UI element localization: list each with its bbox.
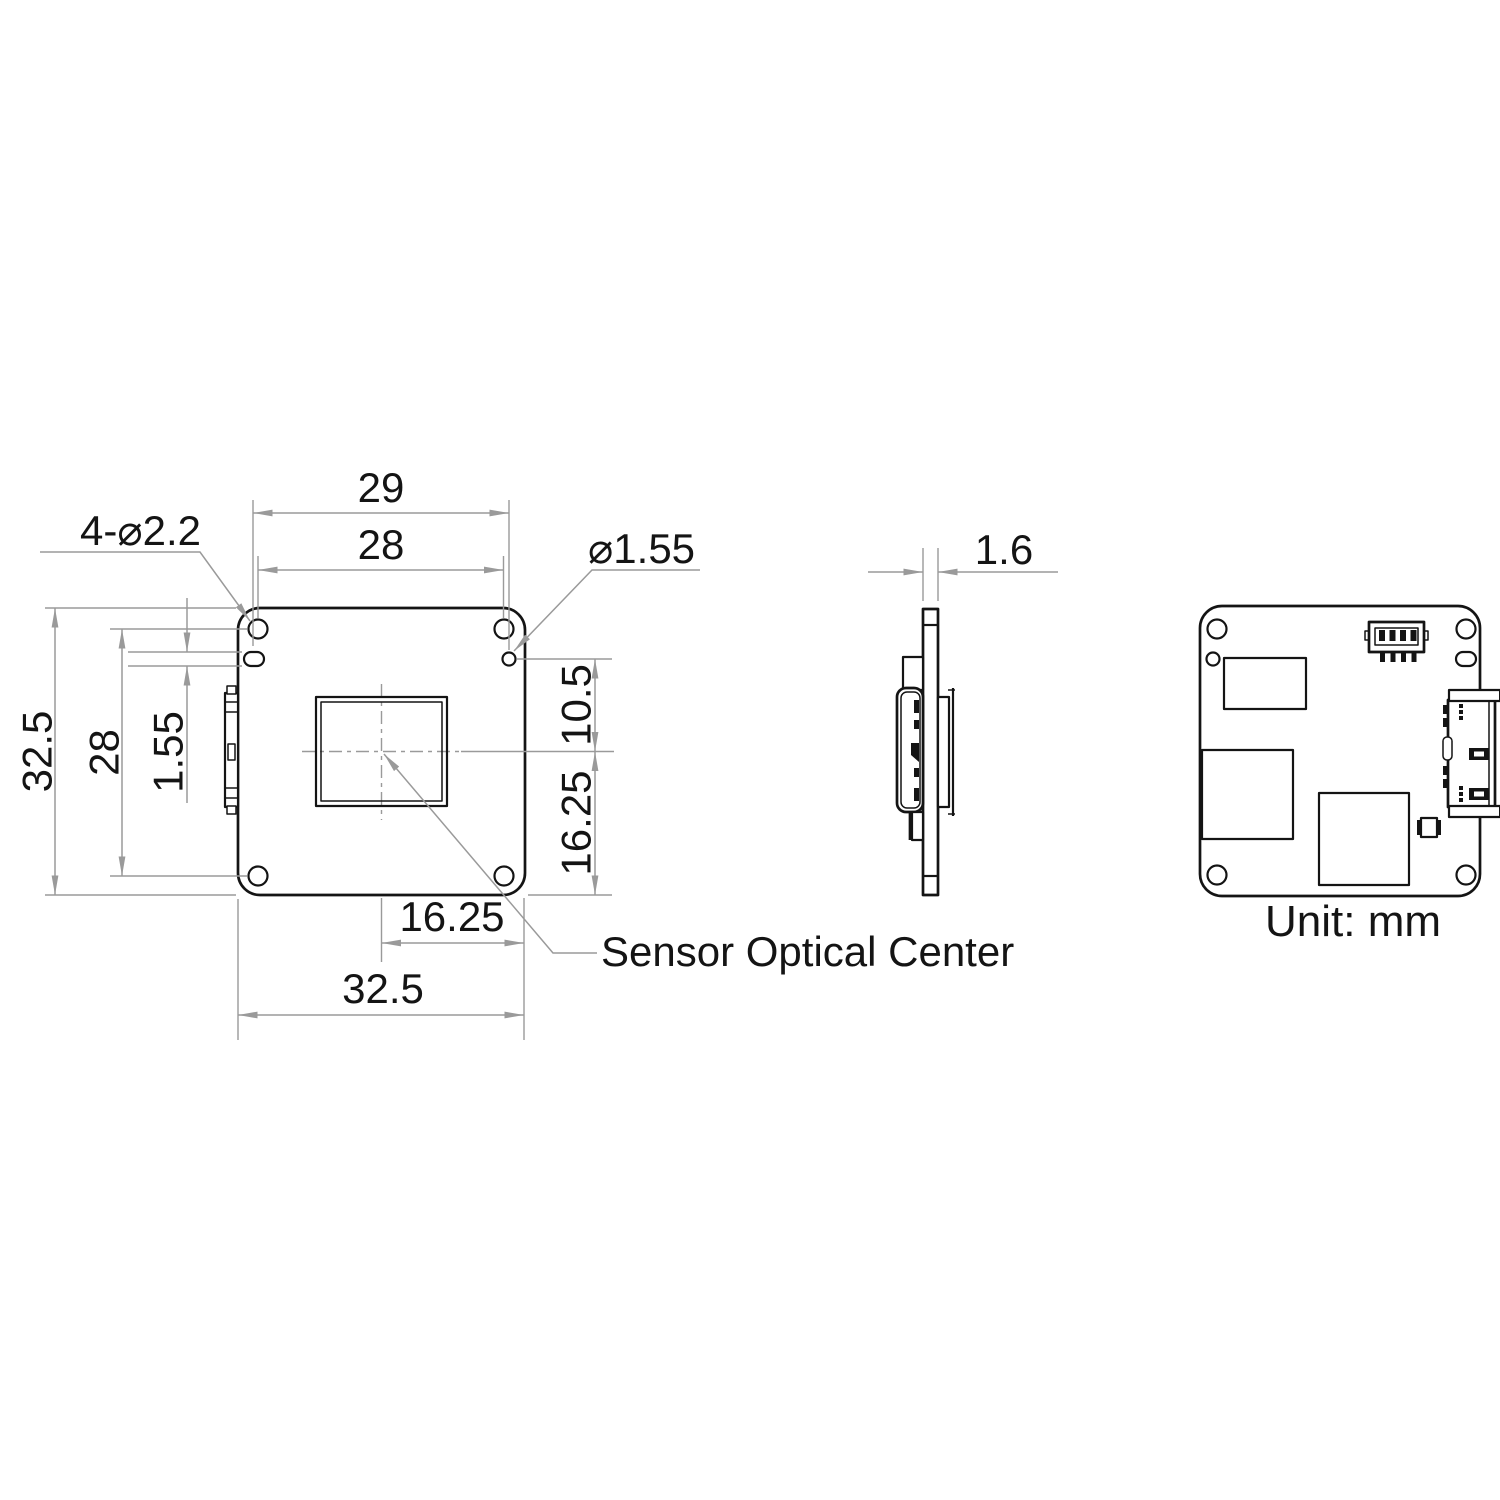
back-view: Unit: mm bbox=[1200, 606, 1500, 946]
dim-text-32-5-bottom: 32.5 bbox=[342, 965, 424, 1012]
drawing-page: 29 28 32.5 28 1.55 10.5 16.25 16.25 32.5… bbox=[0, 0, 1500, 1500]
usb-connector-side bbox=[897, 688, 923, 812]
dim-text-32-5-left: 32.5 bbox=[14, 711, 61, 793]
dim-text-16-25-right: 16.25 bbox=[553, 770, 600, 875]
board-edge bbox=[923, 609, 938, 895]
leader-locating-hole bbox=[514, 570, 700, 651]
lens-mount-side bbox=[938, 688, 955, 816]
board-step-below-usb bbox=[910, 812, 923, 840]
unit-note: Unit: mm bbox=[1265, 897, 1441, 946]
technical-drawing: 29 28 32.5 28 1.55 10.5 16.25 16.25 32.5… bbox=[0, 0, 1500, 1500]
front-view: 29 28 32.5 28 1.55 10.5 16.25 16.25 32.5… bbox=[14, 464, 1015, 1040]
dim-text-10-5-right: 10.5 bbox=[553, 664, 600, 746]
dim-text-1-6: 1.6 bbox=[975, 526, 1033, 573]
dim-text-29: 29 bbox=[358, 464, 405, 511]
callout-text-sensor-center: Sensor Optical Center bbox=[601, 928, 1014, 975]
dim-text-1-55-left: 1.55 bbox=[145, 711, 192, 793]
callout-text-mounting-holes: 4-⌀2.2 bbox=[80, 507, 201, 554]
dim-text-28-top: 28 bbox=[358, 521, 405, 568]
side-view: 1.6 bbox=[868, 526, 1058, 895]
usb-connector-profile-front bbox=[225, 686, 238, 814]
connector-shield-step bbox=[903, 657, 923, 690]
smd-component bbox=[1417, 818, 1441, 837]
callout-text-locating-hole: ⌀1.55 bbox=[588, 525, 695, 572]
dim-text-16-25-bottom: 16.25 bbox=[399, 893, 504, 940]
leader-mounting-holes bbox=[40, 552, 250, 621]
usb-connector-back bbox=[1443, 689, 1500, 818]
dim-text-28-left: 28 bbox=[81, 729, 128, 776]
